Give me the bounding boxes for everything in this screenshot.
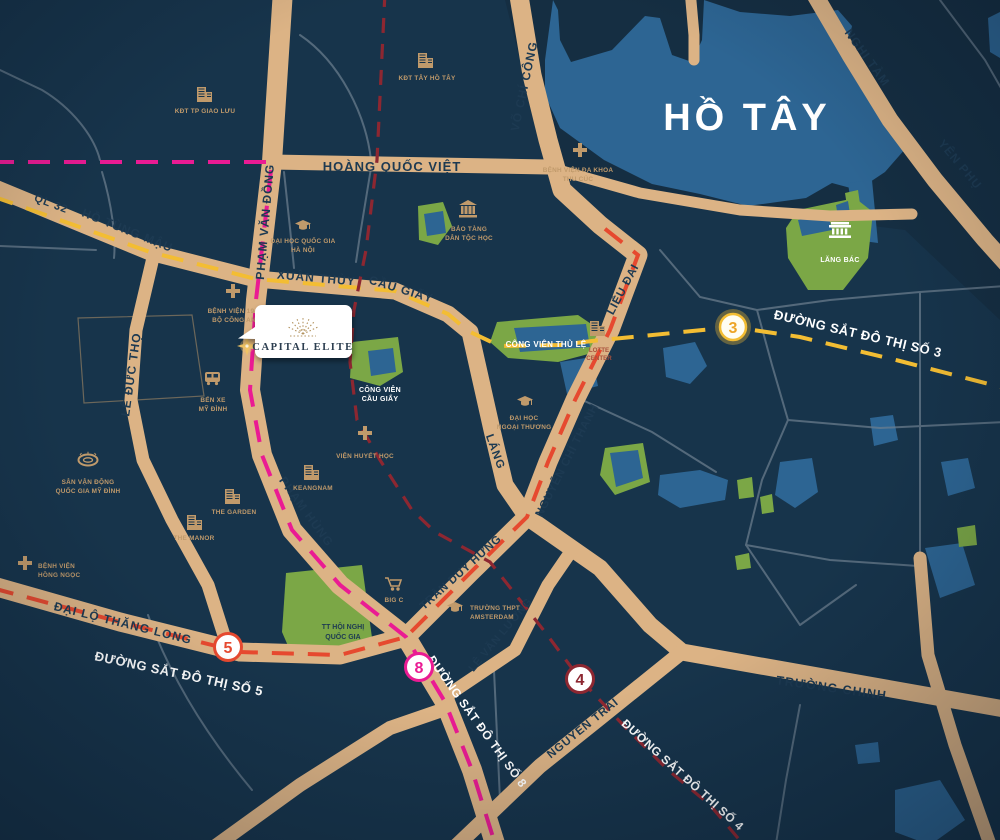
metro-badge-8: 8: [406, 654, 433, 681]
hanoi-location-map: HOÀNG QUỐC VIỆT PHẠM VĂN ĐỒNG QL 32 HỒ T…: [0, 0, 1000, 840]
small-park: [735, 553, 751, 570]
poi-lotte-1: LOTTE: [589, 347, 609, 354]
poi-bv-thu-cuc-1: BỆNH VIỆN ĐA KHOA: [543, 165, 614, 174]
poi-svd-1: SÂN VẬN ĐỘNG: [62, 477, 115, 486]
poi-bv-thu-cuc-2: THU CÚC: [563, 174, 594, 183]
project-name: CAPITAL ELITE: [252, 342, 353, 353]
poi-the-manor: THE MANOR: [174, 535, 215, 542]
poi-bv-hong-ngoc-1: BỆNH VIỆN: [38, 561, 75, 570]
poi-ben-xe-2: MỸ ĐÌNH: [199, 404, 228, 413]
poi-keangnam: KEANGNAM: [293, 485, 333, 492]
metro-badge-3: 3: [715, 309, 751, 345]
poi-ams-2: AMSTERDAM: [470, 614, 514, 621]
poi-bv-198-2: BỘ CÔNG AN: [212, 315, 256, 324]
poi-big-c: BIG C: [384, 597, 403, 604]
poi-the-garden: THE GARDEN: [212, 509, 257, 516]
small-park: [957, 525, 977, 547]
poi-bv-198-1: BỆNH VIỆN 19-8: [208, 306, 261, 315]
lake-title: HỒ TÂY: [663, 95, 831, 139]
poi-ngoai-thuong-2: NGOẠI THƯƠNG: [497, 424, 552, 431]
metro-badge-4: 4: [567, 666, 594, 693]
poi-kdt-giao-luu: KĐT TP GIAO LƯU: [175, 108, 236, 115]
poi-lotte-2: CENTER: [586, 355, 612, 362]
poi-ngoai-thuong-1: ĐẠI HỌC: [510, 415, 539, 422]
poi-dhqg-2: HÀ NỘI: [291, 245, 315, 254]
poi-lang-bac: LĂNG BÁC: [820, 255, 859, 264]
poi-bao-tang-1: BẢO TÀNG: [451, 224, 487, 233]
svg-text:8: 8: [415, 660, 424, 677]
poi-ams-1: TRƯỜNG THPT: [470, 603, 520, 612]
metro-badge-5: 5: [215, 634, 242, 661]
poi-cv-thu-le: CÔNG VIÊN THỦ LỆ: [506, 340, 587, 349]
small-park: [737, 477, 754, 499]
svg-text:5: 5: [224, 640, 233, 657]
svg-text:3: 3: [729, 320, 738, 337]
road-lake-west: [690, 0, 694, 60]
road-label-hoang-quoc-viet: HOÀNG QUỐC VIỆT: [323, 159, 462, 174]
svg-text:4: 4: [576, 672, 585, 689]
poi-bao-tang-2: DÂN TỘC HỌC: [445, 233, 493, 242]
poi-cv-cau-giay-1: CÔNG VIÊN: [359, 385, 401, 394]
pond: [855, 742, 880, 764]
small-park: [760, 494, 774, 514]
poi-tt-hoi-nghi-1: TT HỘI NGHỊ: [322, 622, 364, 631]
